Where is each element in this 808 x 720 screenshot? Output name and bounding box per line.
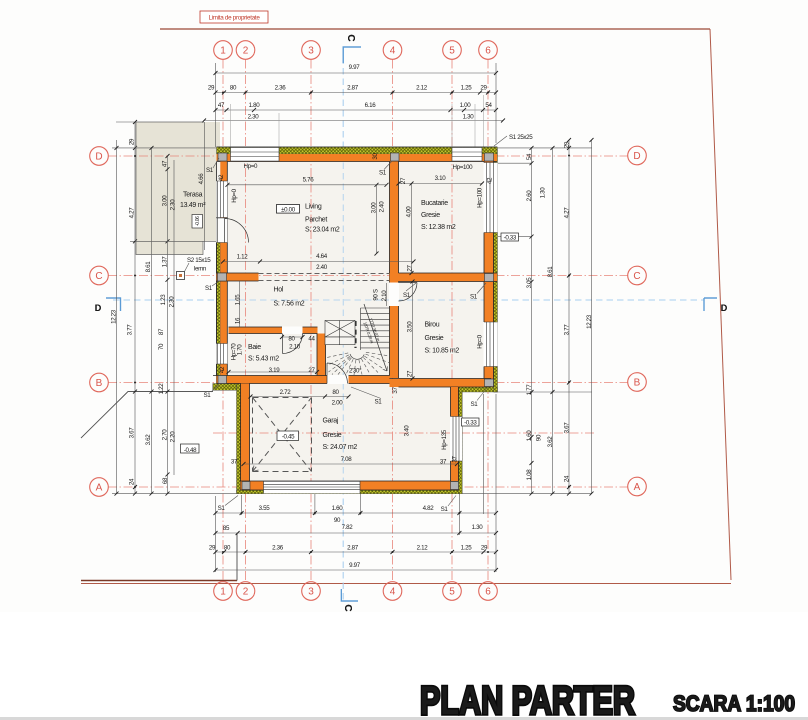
svg-text:27: 27 — [400, 177, 407, 184]
svg-text:13.49 m²: 13.49 m² — [180, 202, 206, 209]
svg-text:1.65: 1.65 — [235, 294, 242, 306]
svg-text:Gresie: Gresie — [323, 432, 342, 439]
svg-text:27: 27 — [407, 265, 414, 272]
svg-text:2.70: 2.70 — [162, 429, 169, 441]
svg-text:Parchet: Parchet — [305, 217, 327, 224]
svg-text:44: 44 — [308, 336, 315, 343]
svg-text:PLAN PARTER: PLAN PARTER — [420, 679, 635, 720]
svg-text:1.22: 1.22 — [158, 383, 165, 395]
svg-text:12.23: 12.23 — [111, 309, 118, 324]
svg-text:D: D — [95, 303, 102, 313]
svg-text:Hp=135: Hp=135 — [441, 429, 448, 450]
svg-text:2: 2 — [243, 46, 249, 57]
svg-text:8.61: 8.61 — [145, 261, 152, 273]
svg-text:3.67: 3.67 — [129, 427, 136, 439]
svg-text:2.36: 2.36 — [272, 545, 284, 552]
svg-text:S: 10.85 m2: S: 10.85 m2 — [425, 348, 460, 355]
svg-text:3.55: 3.55 — [259, 505, 271, 512]
svg-text:27: 27 — [407, 370, 414, 377]
svg-text:Limita de proprietate: Limita de proprietate — [208, 15, 260, 22]
svg-text:2.10: 2.10 — [289, 344, 301, 351]
svg-text:2.72: 2.72 — [280, 389, 292, 396]
svg-text:2.30: 2.30 — [248, 114, 260, 121]
svg-text:3.62: 3.62 — [547, 436, 554, 448]
svg-text:2.00: 2.00 — [332, 400, 344, 407]
svg-text:80: 80 — [332, 389, 339, 396]
svg-text:2.30: 2.30 — [169, 296, 176, 308]
svg-text:C: C — [633, 271, 640, 282]
svg-text:29: 29 — [208, 85, 215, 92]
svg-text:4.82: 4.82 — [423, 505, 435, 512]
svg-text:S: 23.04 m2: S: 23.04 m2 — [305, 227, 340, 234]
svg-text:27: 27 — [308, 367, 315, 374]
svg-text:1.08: 1.08 — [526, 469, 533, 481]
svg-text:-0.06: -0.06 — [195, 216, 201, 226]
svg-text:1.60: 1.60 — [526, 430, 533, 442]
svg-text:24: 24 — [129, 478, 136, 485]
svg-text:5: 5 — [449, 46, 455, 57]
svg-text:6: 6 — [485, 46, 491, 57]
svg-text:4.00: 4.00 — [406, 206, 413, 218]
svg-text:2: 2 — [243, 587, 249, 598]
svg-text:30: 30 — [372, 153, 379, 160]
svg-text:Terasa: Terasa — [183, 192, 203, 199]
svg-text:D: D — [633, 151, 640, 162]
svg-text:6: 6 — [485, 587, 491, 598]
svg-text:80: 80 — [224, 545, 231, 552]
svg-text:54: 54 — [485, 102, 492, 109]
svg-text:1: 1 — [220, 46, 226, 57]
svg-text:37: 37 — [231, 459, 238, 466]
svg-text:2.10: 2.10 — [381, 290, 388, 302]
svg-text:2.30: 2.30 — [170, 199, 177, 211]
svg-text:29: 29 — [564, 141, 571, 148]
svg-text:B: B — [96, 378, 103, 389]
svg-text:42: 42 — [219, 366, 226, 373]
svg-text:D: D — [95, 152, 102, 163]
svg-text:4.27: 4.27 — [129, 207, 136, 219]
svg-text:Birou: Birou — [425, 322, 440, 329]
svg-text:90: 90 — [536, 434, 543, 441]
svg-text:12.23: 12.23 — [586, 314, 593, 329]
svg-text:S1: S1 — [206, 167, 214, 174]
svg-text:Hp=100: Hp=100 — [477, 187, 484, 208]
svg-text:4: 4 — [390, 587, 396, 598]
svg-text:1.30: 1.30 — [540, 187, 547, 199]
svg-text:24: 24 — [564, 475, 571, 482]
svg-text:3.67: 3.67 — [564, 422, 571, 434]
svg-text:1.25: 1.25 — [461, 85, 473, 92]
svg-text:-0.45: -0.45 — [282, 433, 295, 440]
svg-text:S: 7.56 m2: S: 7.56 m2 — [274, 301, 305, 308]
svg-text:S1: S1 — [218, 505, 226, 512]
svg-text:S1: S1 — [379, 170, 387, 177]
svg-text:S1: S1 — [441, 506, 449, 513]
svg-text:S2 15x15: S2 15x15 — [187, 257, 211, 264]
svg-text:4.64: 4.64 — [316, 253, 328, 260]
svg-text:1.30: 1.30 — [463, 114, 475, 121]
svg-text:3: 3 — [308, 587, 314, 598]
svg-text:S1: S1 — [403, 292, 411, 299]
svg-text:70: 70 — [158, 343, 165, 350]
svg-text:1.12: 1.12 — [237, 254, 249, 261]
svg-text:B: B — [634, 378, 641, 389]
svg-text:Living: Living — [305, 204, 322, 211]
svg-text:29: 29 — [209, 545, 216, 552]
svg-text:2.87: 2.87 — [347, 545, 359, 552]
svg-text:2.20: 2.20 — [170, 431, 177, 443]
svg-text:9.97: 9.97 — [349, 64, 361, 71]
svg-text:Gresie: Gresie — [421, 212, 440, 219]
svg-text:4.66: 4.66 — [198, 173, 205, 185]
svg-text:7.82: 7.82 — [342, 524, 354, 531]
svg-text:87: 87 — [158, 328, 165, 335]
svg-text:9.97: 9.97 — [349, 562, 361, 569]
svg-text:3.62: 3.62 — [145, 434, 152, 446]
svg-text:2.12: 2.12 — [417, 545, 429, 552]
svg-text:1: 1 — [220, 587, 226, 598]
svg-text:S1: S1 — [204, 392, 212, 399]
svg-text:lemn: lemn — [194, 266, 207, 273]
svg-text:37: 37 — [392, 387, 399, 394]
svg-text:3.77: 3.77 — [564, 324, 571, 336]
svg-text:37: 37 — [440, 459, 447, 466]
svg-text:A: A — [634, 482, 641, 493]
svg-text:2.40: 2.40 — [316, 264, 328, 271]
svg-text:29: 29 — [129, 138, 136, 145]
svg-text:3: 3 — [308, 46, 314, 57]
svg-text:3.10: 3.10 — [435, 175, 447, 182]
svg-text:Gresie: Gresie — [425, 335, 444, 342]
svg-text:S1 25x25: S1 25x25 — [509, 134, 533, 141]
svg-text:2.12: 2.12 — [416, 85, 428, 92]
svg-text:Hp=0: Hp=0 — [231, 188, 238, 202]
svg-text:S1: S1 — [471, 401, 479, 408]
svg-text:3.40: 3.40 — [404, 425, 411, 437]
svg-text:29: 29 — [480, 85, 487, 92]
svg-text:8.61: 8.61 — [547, 266, 554, 278]
svg-text:47: 47 — [218, 102, 225, 109]
svg-text:5.76: 5.76 — [303, 177, 315, 184]
svg-text:S: 12.38 m2: S: 12.38 m2 — [421, 224, 456, 231]
svg-text:Baie: Baie — [248, 344, 261, 351]
svg-text:1.80: 1.80 — [249, 102, 261, 109]
svg-text:SCARA 1:100: SCARA 1:100 — [673, 691, 795, 716]
svg-text:S: 24.07 m2: S: 24.07 m2 — [323, 444, 358, 451]
svg-text:47: 47 — [162, 160, 169, 167]
svg-text:Hp=0: Hp=0 — [244, 163, 258, 170]
svg-text:6.16: 6.16 — [365, 102, 377, 109]
svg-text:42: 42 — [218, 174, 225, 181]
svg-text:3.05: 3.05 — [526, 277, 533, 289]
svg-text:2.60: 2.60 — [526, 190, 533, 202]
svg-text:4.27: 4.27 — [564, 207, 571, 219]
svg-text:54: 54 — [526, 153, 533, 160]
svg-text:80: 80 — [230, 85, 237, 92]
svg-text:42: 42 — [487, 177, 494, 184]
svg-text:A: A — [96, 483, 103, 494]
svg-text:Bucatarie: Bucatarie — [421, 200, 448, 207]
svg-text:-0.48: -0.48 — [184, 447, 197, 454]
svg-text:±0.00: ±0.00 — [281, 206, 296, 213]
svg-text:S: 5.43 m2: S: 5.43 m2 — [248, 356, 279, 363]
svg-text:1.77: 1.77 — [526, 384, 533, 396]
svg-text:C: C — [342, 604, 353, 611]
svg-text:Hp=100: Hp=100 — [453, 164, 474, 171]
svg-text:29: 29 — [481, 545, 488, 552]
svg-text:3.50: 3.50 — [407, 321, 414, 333]
svg-text:-0.33: -0.33 — [504, 234, 517, 241]
svg-text:80: 80 — [288, 336, 295, 343]
svg-text:1.25: 1.25 — [461, 545, 473, 552]
svg-text:C: C — [95, 271, 102, 282]
svg-text:Garaj: Garaj — [323, 418, 339, 425]
svg-text:Hol: Hol — [274, 287, 284, 294]
svg-text:1.60: 1.60 — [332, 505, 344, 512]
svg-text:2.36: 2.36 — [275, 85, 287, 92]
svg-text:C: C — [345, 34, 356, 41]
svg-text:1.70: 1.70 — [237, 344, 244, 356]
svg-text:D: D — [721, 303, 728, 313]
svg-text:S1: S1 — [470, 294, 478, 301]
svg-text:2'30°: 2'30° — [349, 368, 362, 375]
svg-text:3.19: 3.19 — [269, 367, 281, 374]
svg-text:37: 37 — [452, 456, 459, 463]
svg-text:1.30: 1.30 — [472, 524, 484, 531]
svg-text:S1: S1 — [205, 285, 213, 292]
svg-text:2.87: 2.87 — [347, 85, 359, 92]
svg-text:85: 85 — [223, 525, 230, 532]
svg-text:Hp=0: Hp=0 — [477, 334, 484, 348]
svg-text:16: 16 — [235, 317, 242, 324]
svg-text:90: 90 — [334, 517, 341, 524]
svg-text:5: 5 — [449, 587, 455, 598]
svg-text:7.08: 7.08 — [341, 456, 353, 463]
svg-text:1.00: 1.00 — [460, 102, 472, 109]
svg-text:3.77: 3.77 — [127, 324, 134, 336]
svg-text:2.40: 2.40 — [379, 201, 386, 213]
svg-text:3.00: 3.00 — [162, 195, 169, 207]
svg-text:90 S: 90 S — [373, 289, 380, 301]
svg-text:3.00: 3.00 — [371, 202, 378, 214]
svg-text:1.23: 1.23 — [160, 294, 167, 306]
svg-text:-0.33: -0.33 — [464, 419, 477, 426]
svg-text:4: 4 — [390, 46, 396, 57]
svg-text:68: 68 — [162, 477, 169, 484]
svg-text:1.37: 1.37 — [162, 256, 169, 268]
svg-text:S1: S1 — [375, 399, 383, 406]
